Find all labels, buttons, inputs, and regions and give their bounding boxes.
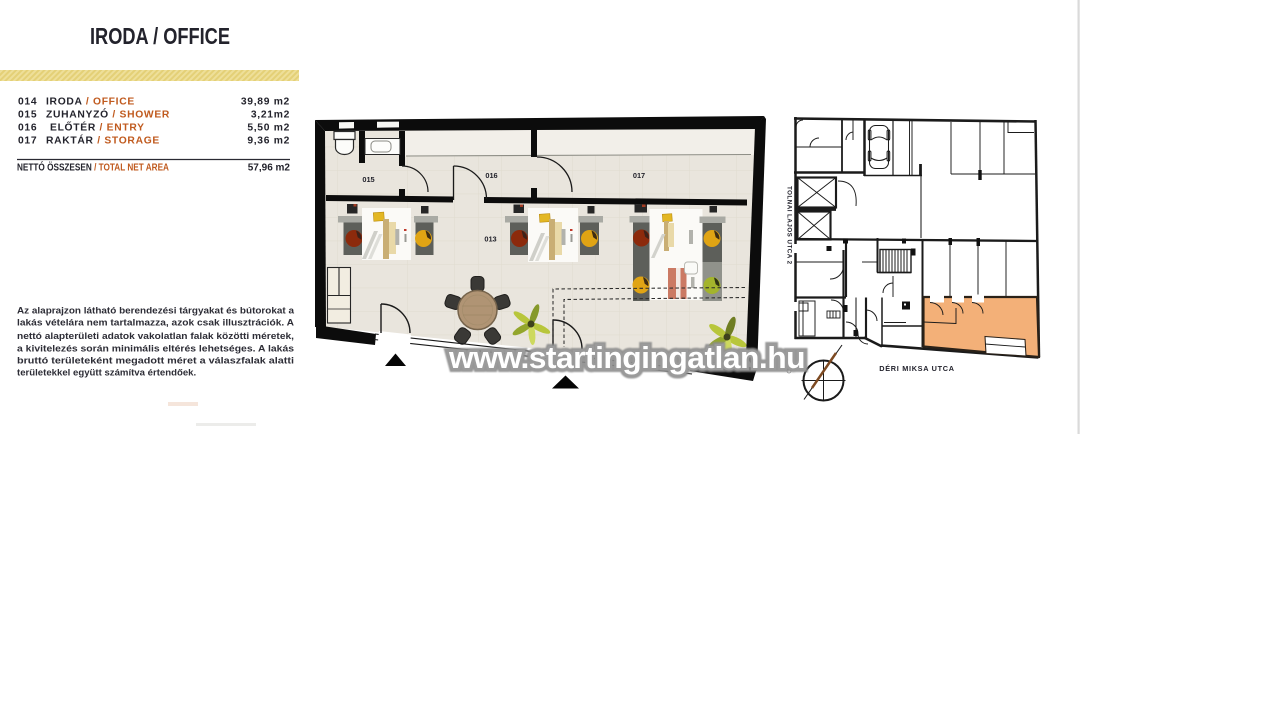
svg-text:nettó alapterületi adatok vako: nettó alapterületi adatok vakolatlan fal… [17,331,294,342]
svg-text:www.startingingatlan.hu: www.startingingatlan.hu [448,341,805,375]
svg-text:9,36 m2: 9,36 m2 [247,136,290,147]
svg-text:017: 017 [633,171,645,180]
svg-text:016: 016 [18,123,37,134]
svg-text:015: 015 [18,110,37,121]
svg-text:NETTÓ ÖSSZESEN / TOTAL NET ARE: NETTÓ ÖSSZESEN / TOTAL NET AREA [17,161,169,174]
svg-text:015: 015 [362,175,374,184]
svg-text:ELŐTÉR / ENTRY: ELŐTÉR / ENTRY [50,121,145,134]
svg-text:TOLNAI LAJOS UTCA 2: TOLNAI LAJOS UTCA 2 [786,186,793,265]
svg-text:013: 013 [484,235,496,244]
svg-text:3,21m2: 3,21m2 [251,110,290,121]
svg-text:016: 016 [485,171,497,180]
svg-text:bruttó területeként megadott m: bruttó területeként megadott méret a vál… [17,356,294,367]
svg-text:017: 017 [18,136,37,147]
svg-text:DÉRI MIKSA UTCA: DÉRI MIKSA UTCA [879,364,955,373]
svg-text:területekkel együtt számítva é: területekkel együtt számítva értendőek. [17,368,196,379]
svg-text:014: 014 [18,97,37,108]
svg-text:RAKTÁR / STORAGE: RAKTÁR / STORAGE [46,134,160,147]
svg-text:IRODA / OFFICE: IRODA / OFFICE [90,23,230,49]
svg-text:lakás vételára nem tartalmazza: lakás vételára nem tartalmazza, azok csa… [17,318,294,329]
svg-text:39,89 m2: 39,89 m2 [241,97,290,108]
svg-text:IRODA / OFFICE: IRODA / OFFICE [46,97,135,108]
svg-text:57,96 m2: 57,96 m2 [248,163,291,174]
svg-text:a kivitelezés során minimális: a kivitelezés során minimális eltérés le… [17,344,294,355]
svg-text:Az alaprajzon látható berendez: Az alaprajzon látható berendezési tárgya… [17,306,295,317]
svg-text:5,50 m2: 5,50 m2 [247,123,290,134]
svg-text:ZUHANYZÓ / SHOWER: ZUHANYZÓ / SHOWER [46,108,170,121]
